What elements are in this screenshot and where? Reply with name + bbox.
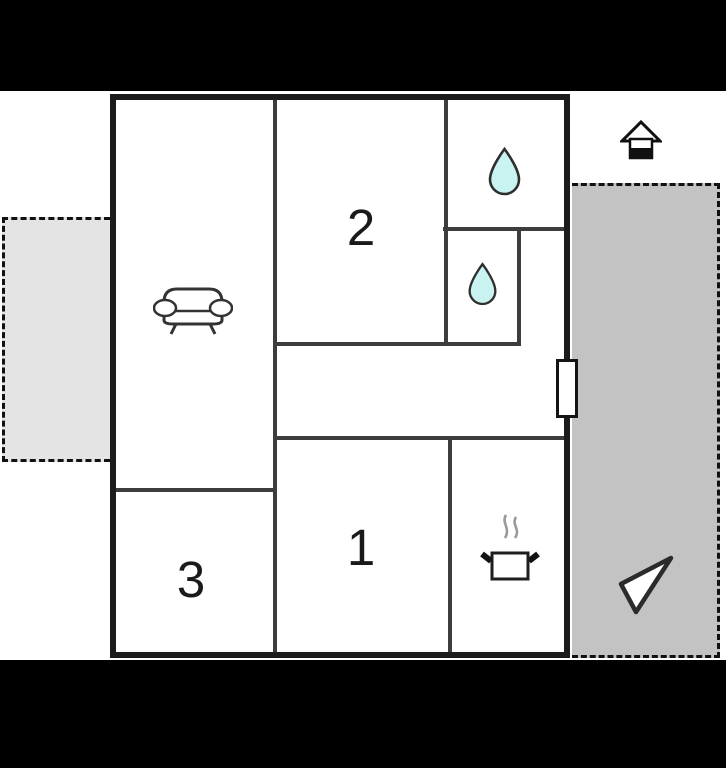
- wall-corridor-bottom: [273, 436, 564, 440]
- plan-canvas: 2 1 3: [0, 91, 726, 660]
- north-arrow-icon: [617, 554, 677, 616]
- letterbox-top: [0, 0, 726, 91]
- house-icon: [620, 120, 662, 162]
- door-marker: [556, 359, 578, 418]
- wall-corridor-top: [273, 342, 521, 346]
- wall-room2-bath-divider: [444, 100, 448, 346]
- letterbox-bottom: [0, 660, 726, 768]
- sofa-icon: [153, 280, 233, 336]
- terrace-left-area: [2, 217, 110, 462]
- room-3-label: 3: [165, 552, 217, 608]
- cooking-pot-icon: [480, 509, 540, 583]
- wall-living-divider: [273, 100, 277, 652]
- water-drop-icon: [467, 261, 498, 308]
- water-drop-icon: [487, 147, 522, 197]
- room-1-label: 1: [335, 520, 387, 576]
- wall-bath1-bottom: [443, 227, 564, 231]
- wall-living-room3: [116, 488, 277, 492]
- room-2-label: 2: [335, 200, 387, 256]
- floorplan-screenshot: 2 1 3: [0, 0, 726, 768]
- wall-bath2-right: [517, 227, 521, 346]
- wall-room1-kitchen: [448, 440, 452, 652]
